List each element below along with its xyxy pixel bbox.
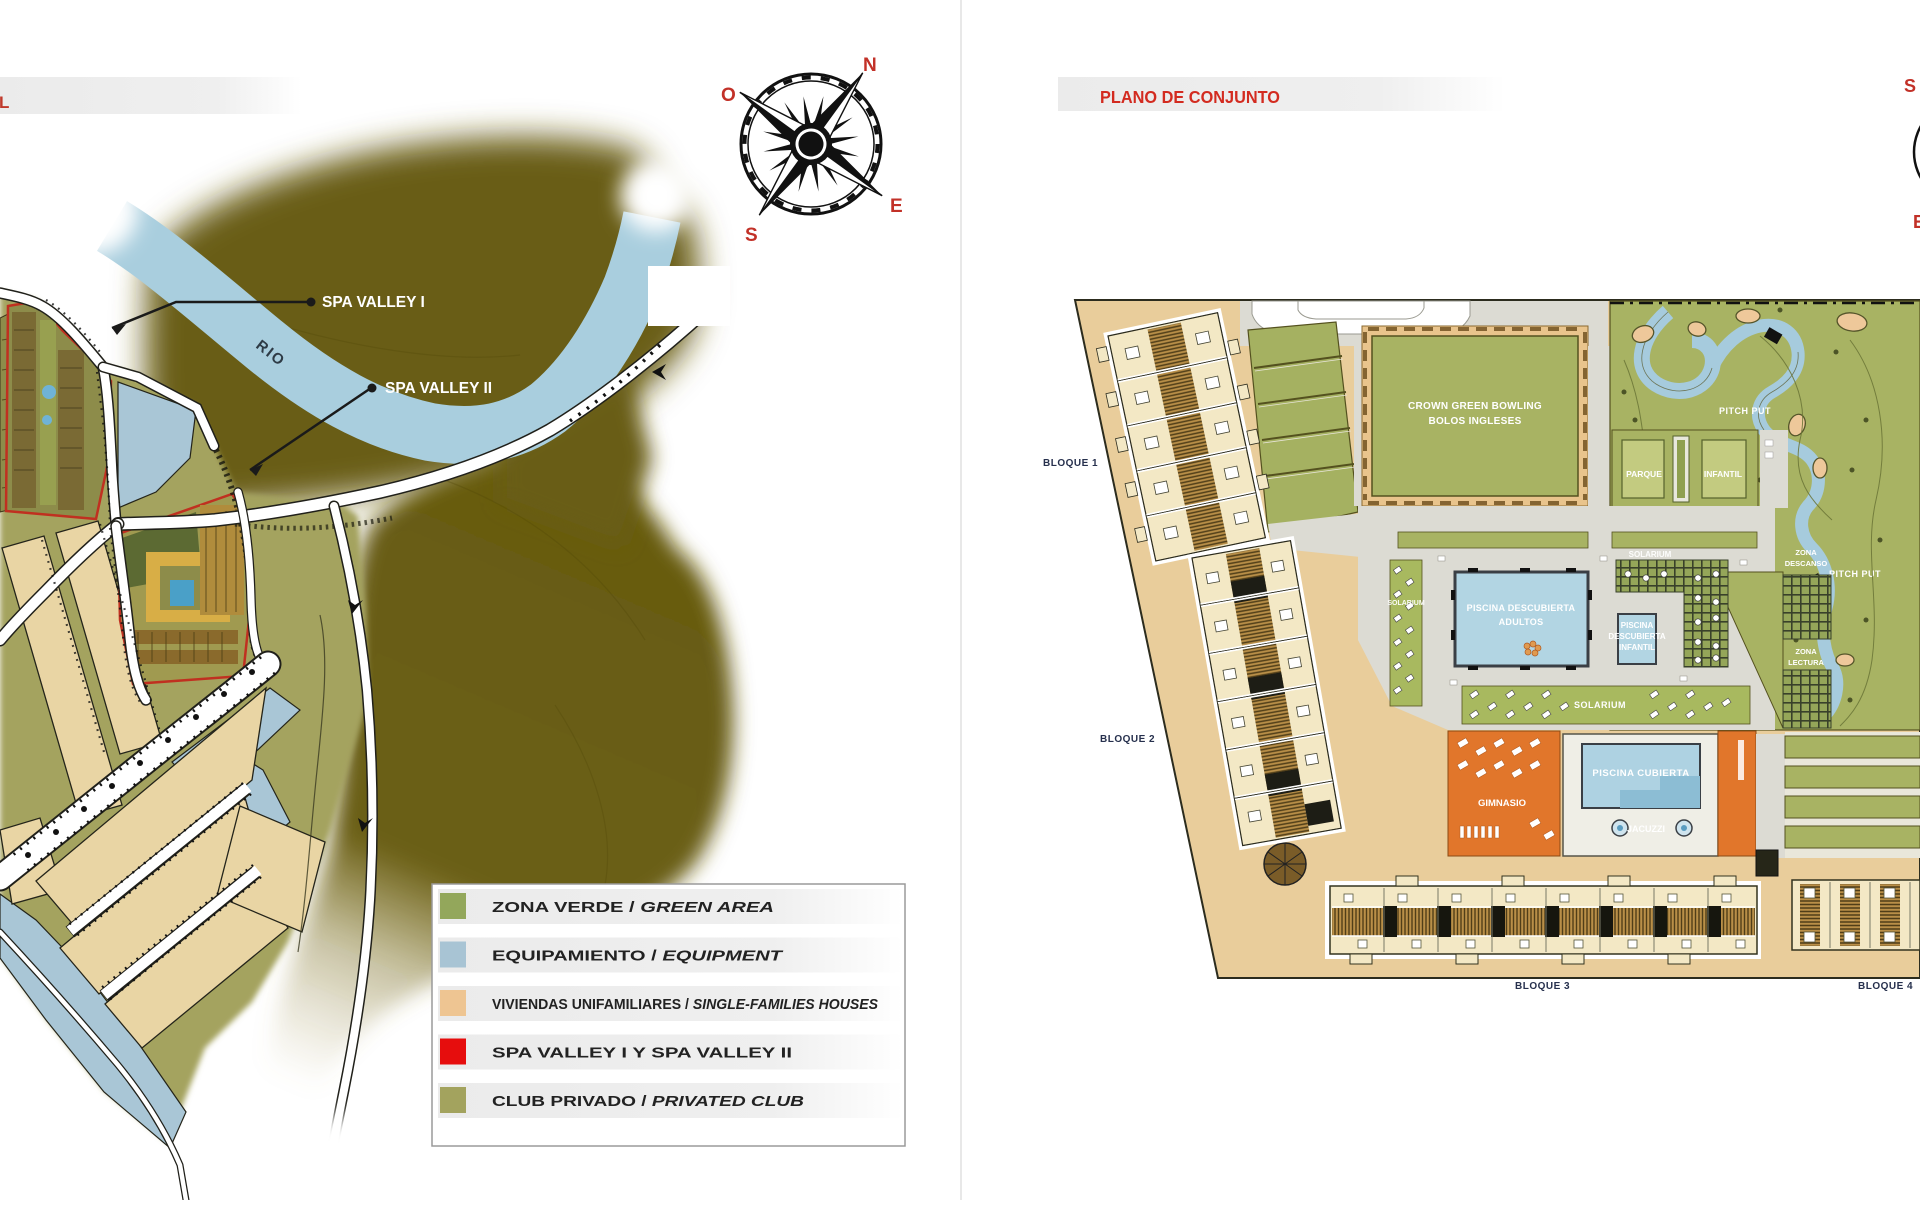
svg-text:ADULTOS: ADULTOS xyxy=(1499,617,1544,627)
svg-text:SOLARIUM: SOLARIUM xyxy=(1629,550,1672,559)
svg-text:ZONA: ZONA xyxy=(1795,548,1817,557)
svg-text:ZONA: ZONA xyxy=(1795,647,1817,656)
svg-text:PLANO DE CONJUNTO: PLANO DE CONJUNTO xyxy=(1100,87,1280,107)
svg-text:PARQUE: PARQUE xyxy=(1626,469,1662,479)
svg-text:E: E xyxy=(1913,212,1920,232)
svg-text:N: N xyxy=(863,55,877,76)
svg-text:DESCANSO: DESCANSO xyxy=(1785,559,1828,568)
svg-text:PISCINA: PISCINA xyxy=(1621,621,1654,630)
svg-text:JACUZZI: JACUZZI xyxy=(1627,824,1665,834)
svg-text:GIMNASIO: GIMNASIO xyxy=(1478,798,1526,809)
svg-text:INFANTIL: INFANTIL xyxy=(1619,643,1655,652)
svg-text:SPA VALLEY I Y SPA VALLEY II: SPA VALLEY I Y SPA VALLEY II xyxy=(492,1045,792,1062)
svg-text:SPA VALLEY II: SPA VALLEY II xyxy=(385,380,492,397)
svg-text:S: S xyxy=(1904,76,1916,96)
svg-text:BOLOS INGLESES: BOLOS INGLESES xyxy=(1428,416,1521,427)
svg-text:INFANTIL: INFANTIL xyxy=(1704,469,1742,479)
svg-text:BLOQUE 1: BLOQUE 1 xyxy=(1043,458,1098,469)
svg-text:EQUIPAMIENTO / EQUIPMENT: EQUIPAMIENTO / EQUIPMENT xyxy=(492,948,784,965)
svg-text:L: L xyxy=(0,93,9,112)
svg-text:PITCH PUT: PITCH PUT xyxy=(1719,406,1771,416)
svg-text:E: E xyxy=(890,196,903,217)
svg-text:SOLARIUM: SOLARIUM xyxy=(1387,600,1425,607)
svg-text:PISCINA CUBIERTA: PISCINA CUBIERTA xyxy=(1592,768,1689,779)
svg-text:BLOQUE 2: BLOQUE 2 xyxy=(1100,734,1155,745)
svg-text:S: S xyxy=(745,225,758,246)
svg-text:ZONA VERDE / GREEN AREA: ZONA VERDE / GREEN AREA xyxy=(492,899,774,916)
svg-text:DESCUBIERTA: DESCUBIERTA xyxy=(1608,632,1665,641)
svg-text:O: O xyxy=(721,85,736,106)
svg-text:CROWN GREEN BOWLING: CROWN GREEN BOWLING xyxy=(1408,401,1542,412)
svg-text:VIVIENDAS UNIFAMILIARES / SING: VIVIENDAS UNIFAMILIARES / SINGLE-FAMILIE… xyxy=(492,996,878,1013)
svg-text:SOLARIUM: SOLARIUM xyxy=(1574,700,1626,710)
svg-text:BLOQUE 4: BLOQUE 4 xyxy=(1858,981,1913,992)
svg-text:CLUB PRIVADO / PRIVATED CLUB: CLUB PRIVADO / PRIVATED CLUB xyxy=(492,1093,804,1110)
svg-text:PITCH PUT: PITCH PUT xyxy=(1829,569,1881,579)
svg-text:LECTURA: LECTURA xyxy=(1788,658,1824,667)
svg-text:PISCINA DESCUBIERTA: PISCINA DESCUBIERTA xyxy=(1467,603,1576,613)
svg-text:SPA VALLEY I: SPA VALLEY I xyxy=(322,294,425,311)
svg-text:BLOQUE 3: BLOQUE 3 xyxy=(1515,981,1570,992)
